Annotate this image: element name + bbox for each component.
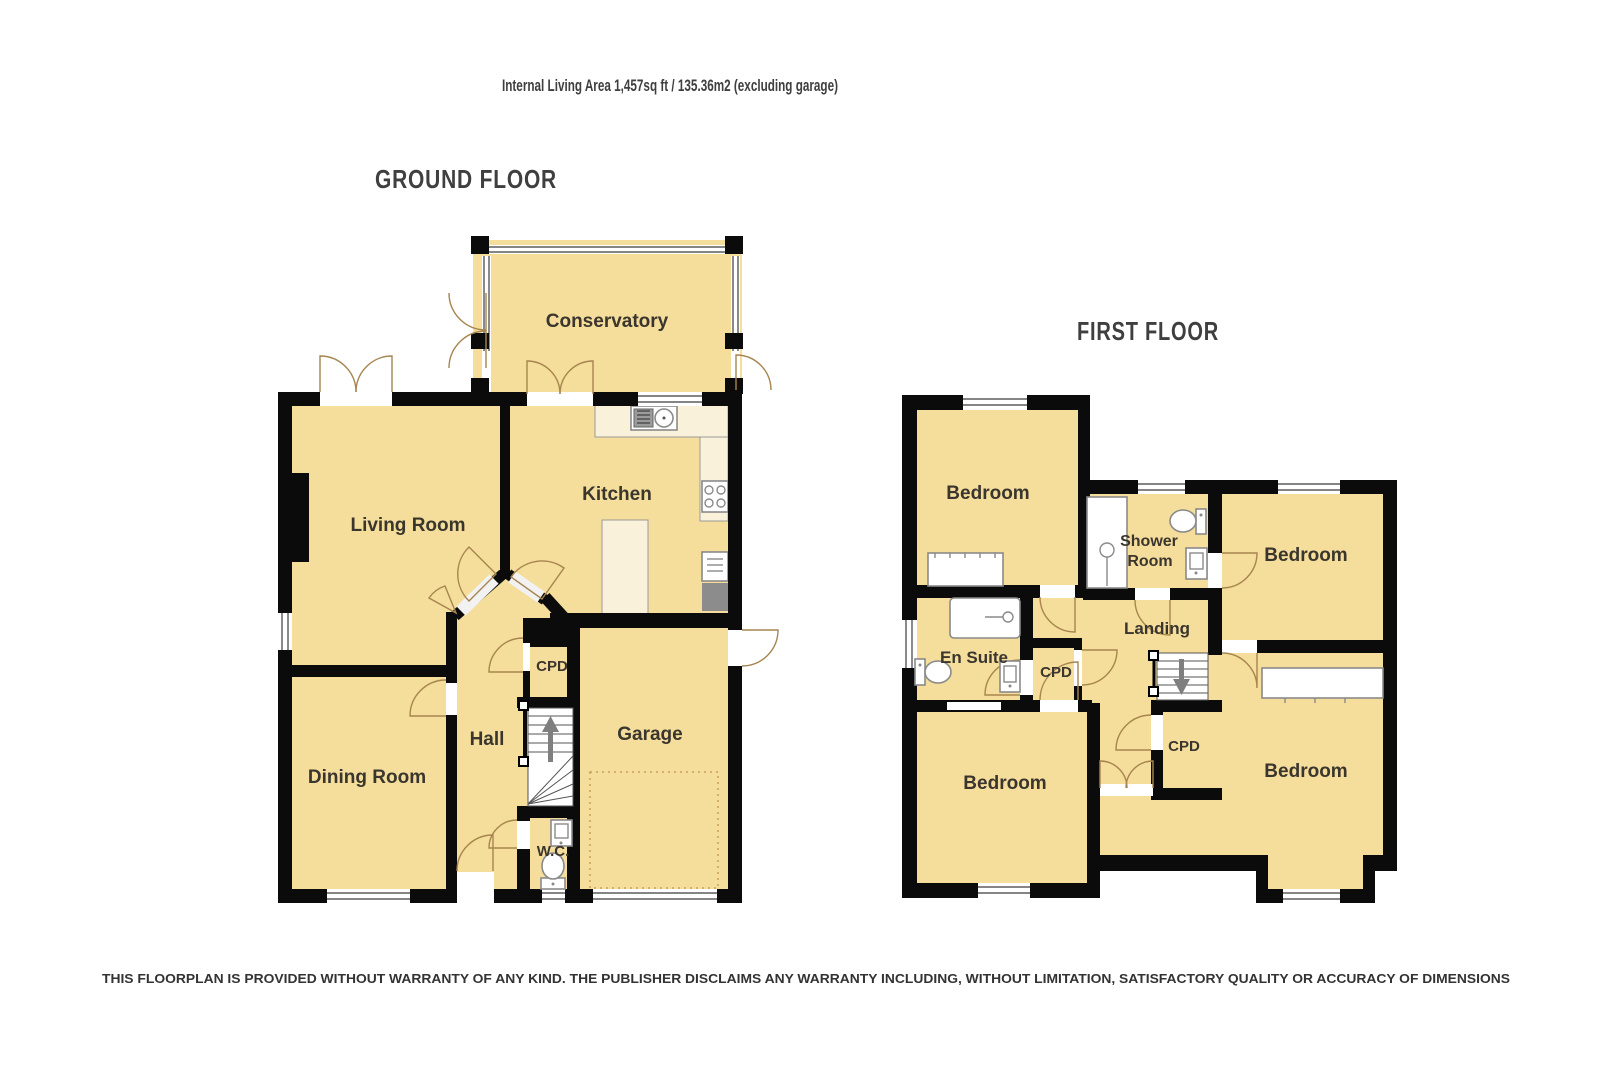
- ground-floor-heading: GROUND FLOOR: [375, 164, 557, 194]
- room-label-shower-line1: Shower: [1120, 533, 1178, 550]
- room-label-bedroom-front-left: Bedroom: [946, 483, 1029, 504]
- bed-icon: [928, 553, 1003, 586]
- ground-floor-plan: Conservatory Living Room Kitchen Dining …: [278, 236, 778, 903]
- room-label-bedroom-bottom-left: Bedroom: [963, 773, 1046, 794]
- room-label-wc: W.C.: [537, 843, 570, 860]
- front-door: [457, 872, 494, 903]
- appliance-icon: [702, 583, 728, 611]
- room-label-conservatory: Conservatory: [546, 311, 669, 332]
- room-label-en-suite: En Suite: [940, 648, 1008, 667]
- bath-icon: [950, 598, 1020, 638]
- first-floor-plan: Bedroom Bedroom Bedroom Bedroom En Suite…: [902, 395, 1397, 903]
- room-label-living-room: Living Room: [350, 515, 465, 536]
- room-label-cpd-left: CPD: [1040, 664, 1072, 681]
- room-label-kitchen: Kitchen: [582, 484, 652, 505]
- kitchen-sink-icon: [631, 406, 677, 430]
- disclaimer-text: THIS FLOORPLAN IS PROVIDED WITHOUT WARRA…: [102, 971, 1510, 986]
- wardrobe-icon: [1262, 668, 1383, 703]
- radiator-icon: [702, 552, 728, 581]
- room-label-bedroom-top-right: Bedroom: [1264, 545, 1347, 566]
- room-label-dining-room: Dining Room: [308, 767, 426, 788]
- room-label-hall: Hall: [470, 729, 505, 750]
- room-label-shower-line2: Room: [1127, 553, 1172, 570]
- room-label-cpd-ground: CPD: [536, 658, 568, 675]
- hob-icon: [702, 481, 728, 512]
- shower-toilet-icon: [1170, 509, 1206, 534]
- room-label-landing: Landing: [1124, 619, 1190, 638]
- room-label-cpd-right: CPD: [1168, 738, 1200, 755]
- room-label-bedroom-bottom-right: Bedroom: [1264, 761, 1347, 782]
- first-floor-heading: FIRST FLOOR: [1077, 316, 1219, 346]
- room-label-garage: Garage: [617, 724, 682, 745]
- garage-door: [593, 889, 717, 903]
- page-title: Internal Living Area 1,457sq ft / 135.36…: [502, 76, 838, 95]
- floorplan-page: Internal Living Area 1,457sq ft / 135.36…: [0, 0, 1620, 1080]
- shower-basin-icon: [1186, 548, 1207, 579]
- stairs-down-icon: [1149, 651, 1208, 700]
- floorplan-canvas: Internal Living Area 1,457sq ft / 135.36…: [0, 0, 1620, 1080]
